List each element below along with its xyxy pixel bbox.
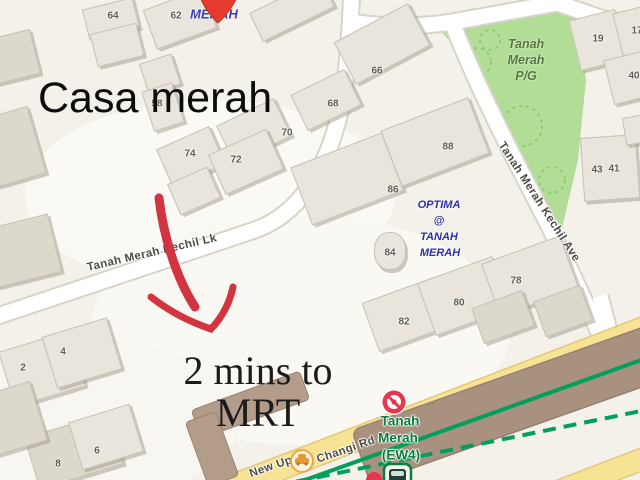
station-label: Tanah <box>381 414 420 429</box>
optima-label: @ <box>434 215 445 227</box>
mrt-note-line2: MRT <box>184 392 333 434</box>
road-label-kechil-lk: Tanah Merah Kechil Lk <box>86 232 218 274</box>
park-label: P/G <box>515 69 537 83</box>
mrt-note-annotation: 2 mins to MRT <box>184 350 333 433</box>
casa-merah-annotation: Casa merah <box>38 74 272 123</box>
oneway-arrow-icon: → <box>421 393 438 411</box>
station-label: (EW4) <box>382 448 420 463</box>
optima-label: TANAH <box>420 231 458 243</box>
optima-label: MERAH <box>420 247 460 259</box>
road-label-new-up: New Up <box>248 454 294 480</box>
optima-label: OPTIMA <box>418 199 461 211</box>
mrt-note-line1: 2 mins to <box>184 350 333 392</box>
road-label-kechil-ave: Tanah Merah Kechil Ave <box>496 140 582 264</box>
station-label: Merah <box>378 431 418 446</box>
poi-label-merah: MERAH <box>190 7 238 22</box>
park-label: Merah <box>508 53 545 67</box>
map-canvas[interactable]: 6462586668707472868884828078191740434124… <box>0 0 640 480</box>
park-label: Tanah <box>508 37 544 51</box>
road-label-changi-rd: Changi Rd <box>315 434 377 465</box>
